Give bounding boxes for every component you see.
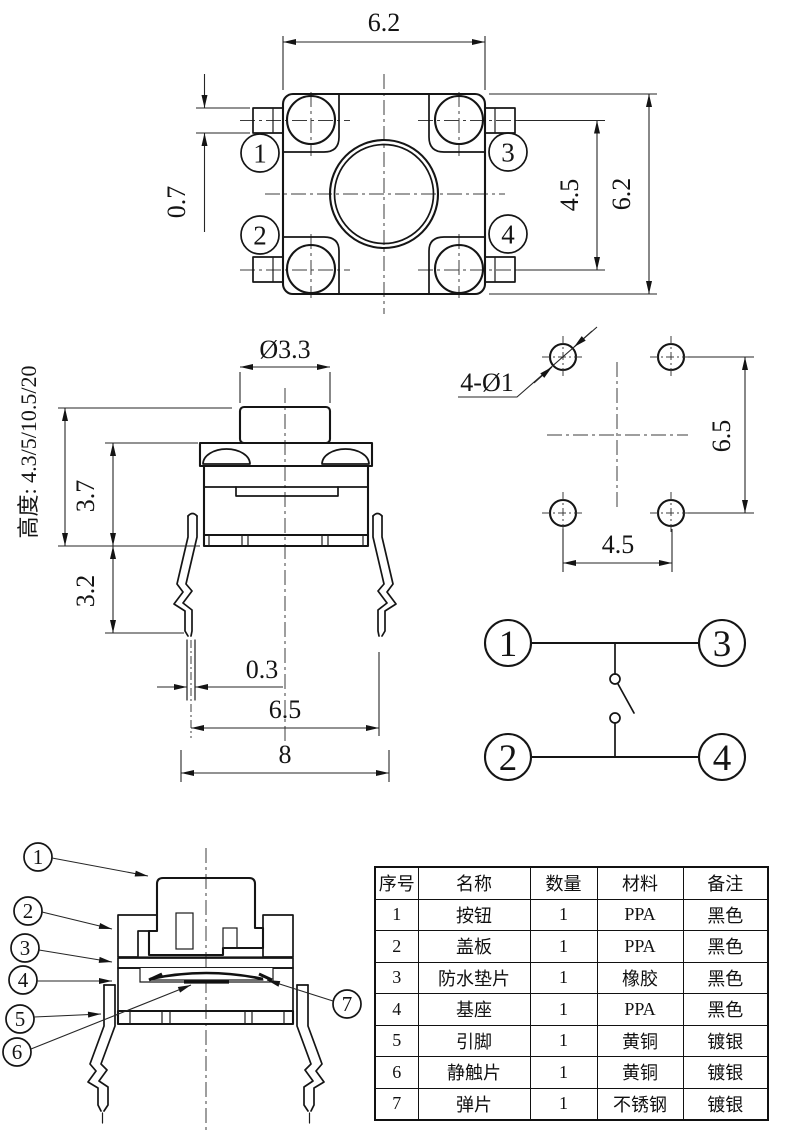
dim-pin-thickness: 0.3: [246, 655, 279, 684]
dim-leg-length: 3.2: [71, 575, 100, 608]
callout-7: 7: [342, 992, 353, 1016]
parts-table-header-row: 序号 名称 数量 材料 备注: [375, 867, 768, 899]
header-index: 序号: [375, 867, 418, 899]
cell-material: PPA: [597, 931, 683, 963]
schematic-pin-2: 2: [499, 738, 518, 779]
cell-index: 2: [375, 931, 418, 963]
cell-qty: 1: [530, 1025, 597, 1057]
cell-index: 7: [375, 1088, 418, 1120]
cell-index: 3: [375, 962, 418, 994]
top-view-drawing: 1 2 3 4 6.2 0.7 4.5 6.2: [162, 8, 657, 314]
schematic-pin-3: 3: [713, 624, 732, 665]
cell-qty: 1: [530, 1088, 597, 1120]
dim-hole-vertical-pitch: 6.5: [707, 420, 736, 453]
dim-height-right: 6.2: [607, 178, 636, 211]
dim-knob-diameter: Ø3.3: [259, 335, 310, 364]
cell-index: 4: [375, 994, 418, 1026]
table-row: 7 弹片 1 不锈钢 镀银: [375, 1088, 768, 1120]
hole-callout-label: 4-Ø1: [460, 368, 513, 397]
cell-material: 黄铜: [597, 1025, 683, 1057]
cell-name: 静触片: [418, 1057, 530, 1089]
cell-qty: 1: [530, 994, 597, 1026]
pin-label-4: 4: [501, 220, 515, 250]
dim-body-height: 3.7: [71, 480, 100, 513]
header-remark: 备注: [683, 867, 768, 899]
dim-hole-horizontal-pitch: 4.5: [602, 530, 635, 559]
cell-name: 基座: [418, 994, 530, 1026]
table-row: 6 静触片 1 黄铜 镀银: [375, 1057, 768, 1089]
dim-overall-width: 8: [279, 740, 292, 769]
height-variants-label: 高度: 4.3/5/10.5/20: [16, 366, 41, 539]
cell-name: 引脚: [418, 1025, 530, 1057]
pin-label-2: 2: [253, 221, 267, 251]
cell-qty: 1: [530, 931, 597, 963]
cell-material: 黄铜: [597, 1057, 683, 1089]
dim-tab-height: 0.7: [162, 186, 191, 219]
callout-6: 6: [12, 1040, 23, 1064]
schematic-drawing: 1 2 3 4: [485, 620, 745, 780]
callout-5: 5: [15, 1007, 26, 1031]
table-row: 3 防水垫片 1 橡胶 黑色: [375, 962, 768, 994]
callout-2: 2: [23, 899, 34, 923]
schematic-pin-4: 4: [713, 738, 732, 779]
cell-remark: 黑色: [683, 899, 768, 931]
switch-contact-symbol: [610, 643, 634, 757]
cell-qty: 1: [530, 1057, 597, 1089]
table-row: 2 盖板 1 PPA 黑色: [375, 931, 768, 963]
dim-pin-pitch: 6.5: [269, 695, 302, 724]
cell-qty: 1: [530, 899, 597, 931]
side-view-drawing: Ø3.3 高度: 4.3/5/10.5/20 3.7 3.2 0.3 6.5 8: [16, 335, 396, 782]
dim-pin-row-span: 4.5: [555, 179, 584, 212]
cover-section: [118, 915, 157, 957]
cell-remark: 镀银: [683, 1088, 768, 1120]
cell-remark: 黑色: [683, 962, 768, 994]
callout-1: 1: [33, 845, 44, 869]
dim-top-width: 6.2: [368, 8, 401, 37]
cell-remark: 黑色: [683, 931, 768, 963]
cell-name: 弹片: [418, 1088, 530, 1120]
table-row: 5 引脚 1 黄铜 镀银: [375, 1025, 768, 1057]
button-section: [149, 878, 263, 955]
cell-name: 按钮: [418, 899, 530, 931]
pin-label-3: 3: [501, 138, 515, 168]
table-row: 1 按钮 1 PPA 黑色: [375, 899, 768, 931]
cell-name: 防水垫片: [418, 962, 530, 994]
header-name: 名称: [418, 867, 530, 899]
cell-material: PPA: [597, 899, 683, 931]
cell-remark: 黑色: [683, 994, 768, 1026]
cross-section-drawing: 1 2 3 4 5 6 7: [3, 843, 361, 1130]
drawing-sheet: 1 2 3 4 6.2 0.7 4.5 6.2: [0, 0, 790, 1142]
pin-label-1: 1: [253, 139, 267, 169]
cell-index: 1: [375, 899, 418, 931]
pcb-layout-drawing: 4-Ø1 6.5 4.5: [458, 327, 754, 572]
parts-table: 序号 名称 数量 材料 备注 1 按钮 1 PPA 黑色 2 盖板 1 PPA …: [374, 866, 769, 1121]
callout-4: 4: [18, 968, 29, 992]
cell-name: 盖板: [418, 931, 530, 963]
cell-material: PPA: [597, 994, 683, 1026]
cell-material: 不锈钢: [597, 1088, 683, 1120]
header-qty: 数量: [530, 867, 597, 899]
schematic-pin-1: 1: [499, 624, 518, 665]
cell-material: 橡胶: [597, 962, 683, 994]
callout-3: 3: [20, 936, 31, 960]
cell-remark: 镀银: [683, 1057, 768, 1089]
cell-index: 6: [375, 1057, 418, 1089]
cell-index: 5: [375, 1025, 418, 1057]
table-row: 4 基座 1 PPA 黑色: [375, 994, 768, 1026]
cell-qty: 1: [530, 962, 597, 994]
cell-remark: 镀银: [683, 1025, 768, 1057]
header-material: 材料: [597, 867, 683, 899]
